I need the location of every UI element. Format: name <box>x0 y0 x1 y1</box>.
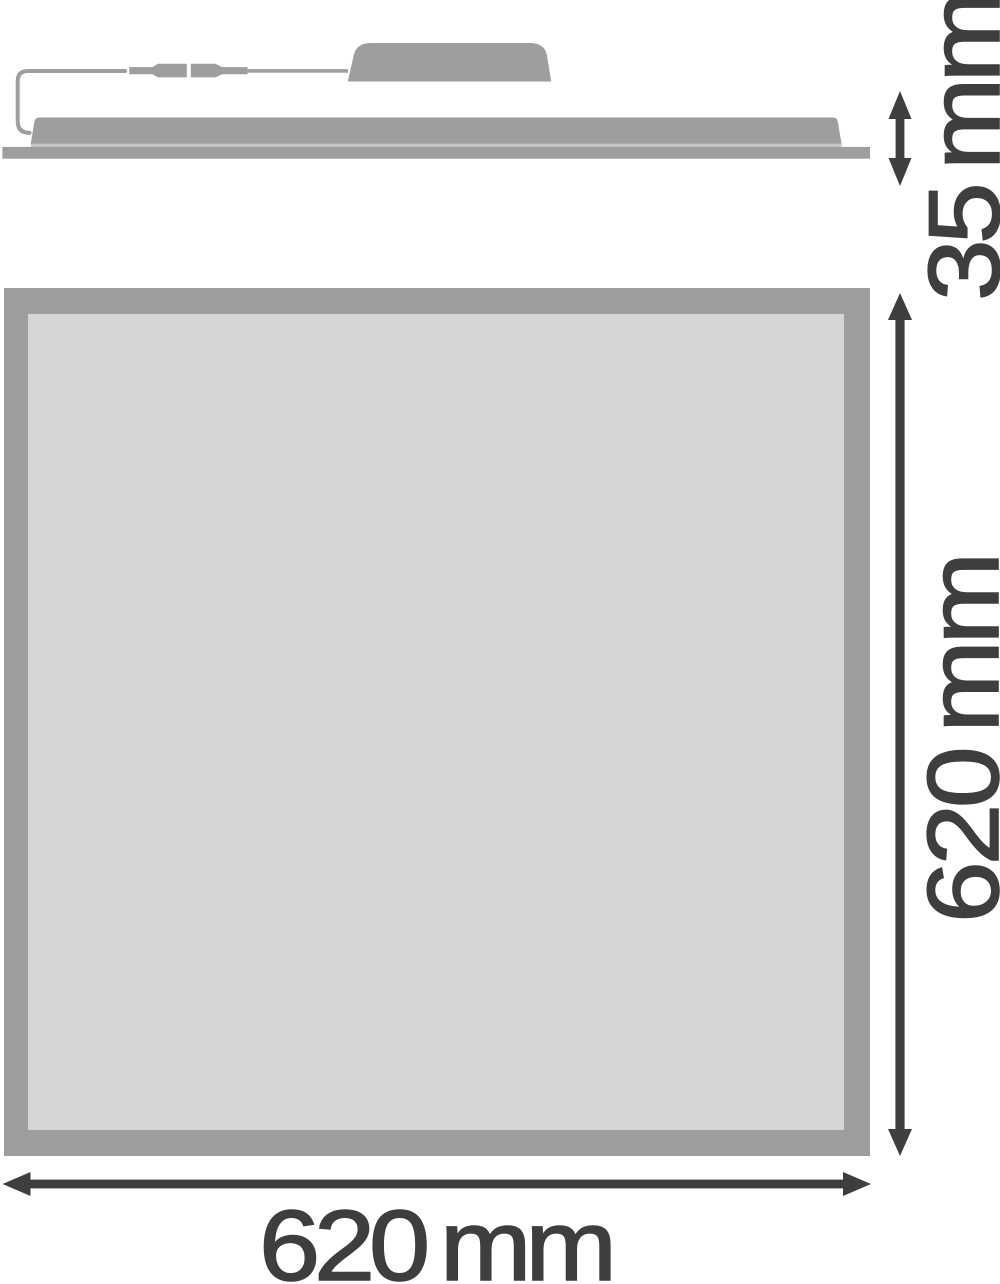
svg-text:35 mm: 35 mm <box>909 0 1000 301</box>
svg-text:620 mm: 620 mm <box>908 552 1000 923</box>
svg-text:620 mm: 620 mm <box>259 1191 617 1284</box>
